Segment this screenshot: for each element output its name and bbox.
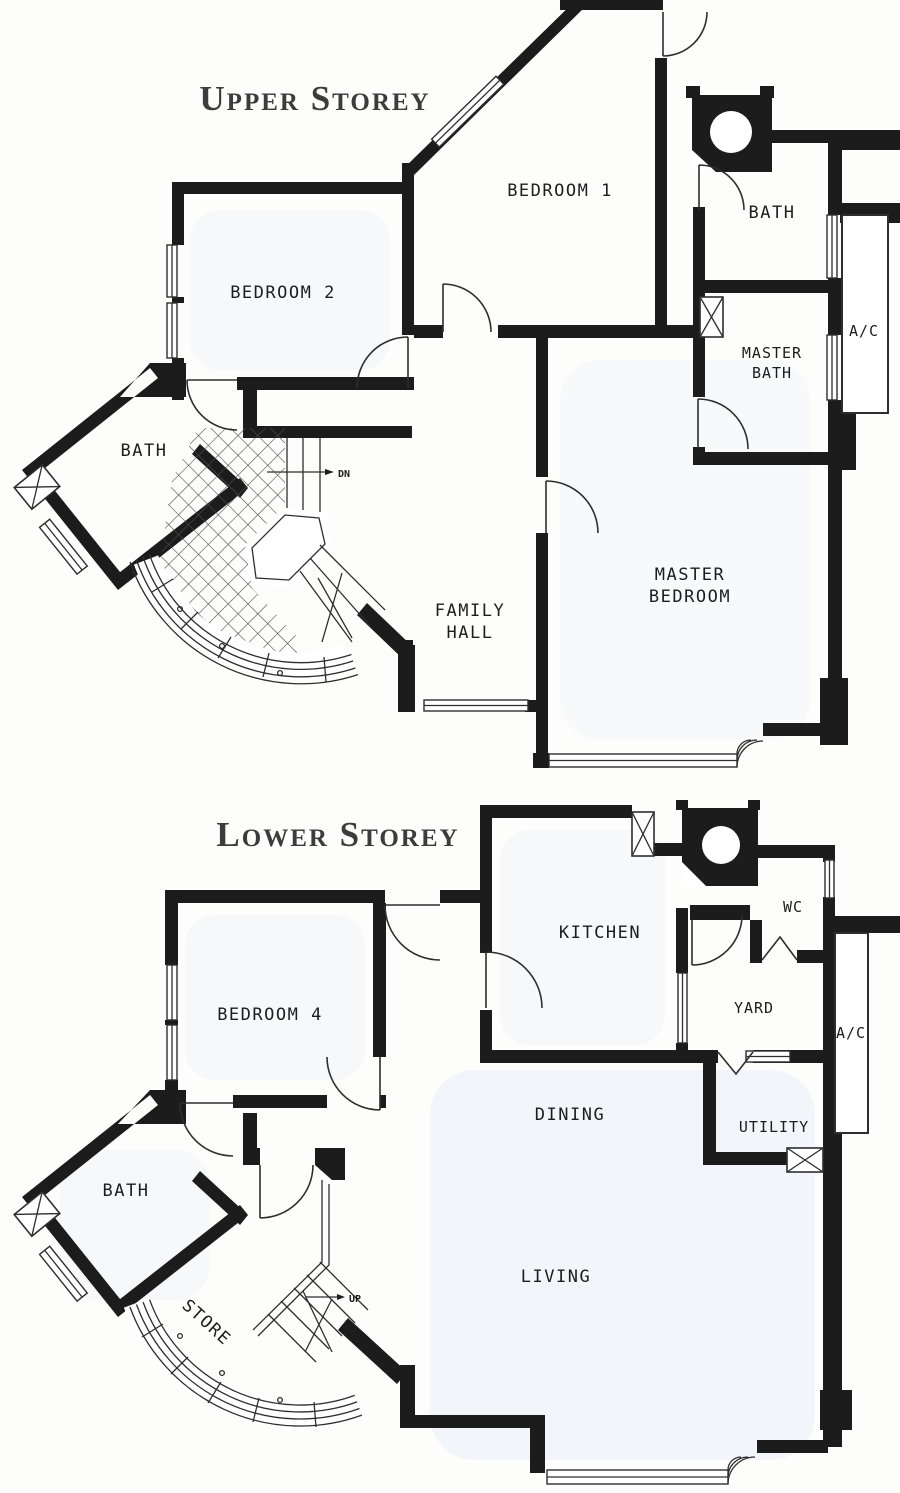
room-label-family-hall: FAMILYHALL <box>435 601 505 643</box>
room-label-bath-upper-left: BATH <box>121 441 168 461</box>
door-arc <box>663 12 707 56</box>
window <box>167 303 177 358</box>
window <box>678 973 687 1043</box>
room-label-bedroom1: BEDROOM 1 <box>507 181 613 201</box>
room-label-wc: WC <box>783 898 803 916</box>
door-arc <box>187 380 237 430</box>
room-label-ac-lower: A/C <box>836 1024 866 1042</box>
room-label-bath-lower: BATH <box>103 1181 150 1201</box>
room-label-bath-upper-right: BATH <box>749 203 796 223</box>
floorplan-svg: DN <box>0 0 900 1493</box>
room-label-bedroom2: BEDROOM 2 <box>230 283 336 303</box>
room-label-living: LIVING <box>521 1267 591 1287</box>
door-arc <box>443 284 491 332</box>
room-label-utility: UTILITY <box>739 1118 809 1136</box>
stair-up-label: UP <box>349 1294 361 1305</box>
room-label-ac-upper: A/C <box>849 322 879 340</box>
room-label-bedroom4: BEDROOM 4 <box>217 1005 323 1025</box>
door-arc <box>385 905 440 960</box>
room-label-kitchen: KITCHEN <box>559 923 641 943</box>
window <box>167 965 177 1020</box>
window <box>424 700 528 711</box>
window-bay-living <box>547 1457 755 1484</box>
door-arc <box>180 1103 233 1156</box>
window <box>827 335 837 400</box>
window <box>432 76 504 147</box>
folding-door-wc <box>762 937 797 960</box>
upper-staircase: DN <box>130 428 385 684</box>
duct-shaft-kitchen <box>632 812 654 856</box>
duct-shaft-utility <box>787 1148 823 1172</box>
room-label-dining: DINING <box>535 1105 605 1125</box>
window <box>825 860 834 898</box>
room-label-yard: YARD <box>734 999 774 1017</box>
door-arc <box>692 915 742 965</box>
room-label-store: STORE <box>178 1296 235 1350</box>
floorplan-page: DN <box>0 0 900 1493</box>
door-arc <box>260 1165 313 1218</box>
ac-ledge-upper <box>842 215 888 413</box>
duct-shaft-masterbath <box>700 297 723 337</box>
window <box>167 245 177 297</box>
window <box>827 215 837 278</box>
stair-dn-label: DN <box>338 469 350 480</box>
window <box>167 1025 177 1080</box>
lower-storey-title: Lower Storey <box>216 815 459 854</box>
window-bay-master-bedroom <box>549 740 763 767</box>
upper-storey-title: Upper Storey <box>199 79 430 118</box>
